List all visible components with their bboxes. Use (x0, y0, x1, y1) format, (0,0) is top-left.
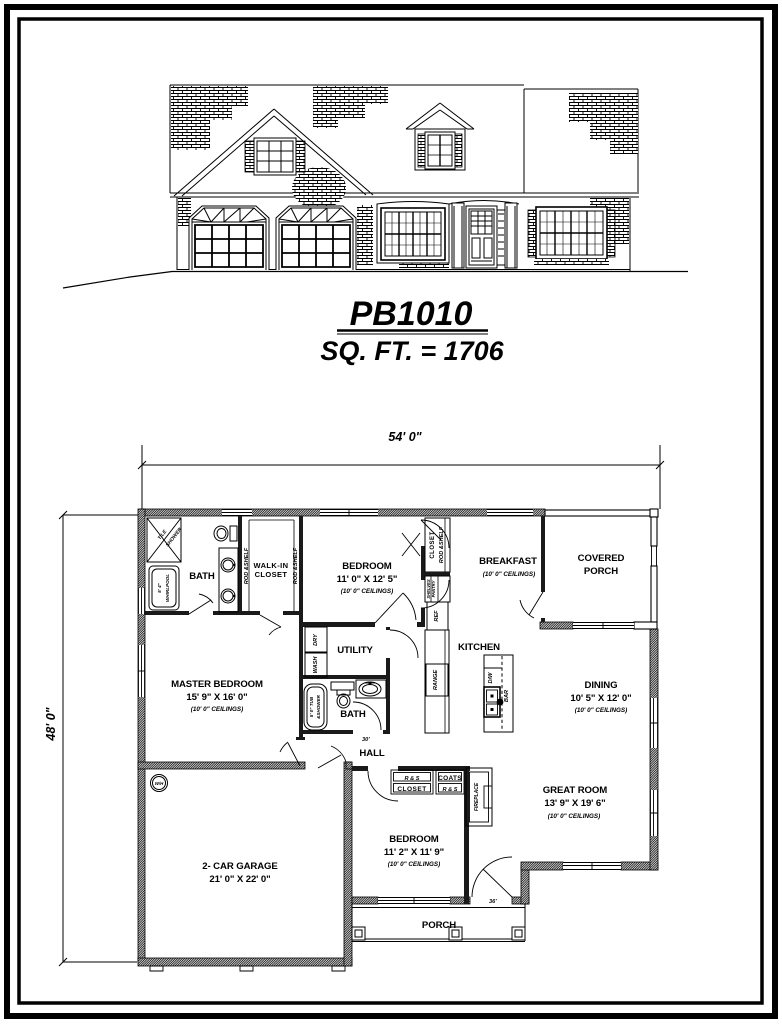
svg-text:FIREPLACE: FIREPLACE (474, 782, 480, 811)
svg-text:10' 5" X 12' 0": 10' 5" X 12' 0" (570, 693, 631, 704)
svg-text:D/W: D/W (488, 672, 494, 684)
svg-text:DRY: DRY (313, 633, 319, 646)
svg-text:PORCH: PORCH (422, 920, 456, 931)
svg-text:11' 0" X 12' 5": 11' 0" X 12' 5" (337, 574, 398, 585)
svg-text:BREAKFAST: BREAKFAST (479, 556, 537, 567)
svg-text:R & S: R & S (443, 787, 458, 793)
svg-text:36': 36' (489, 899, 497, 905)
svg-text:ROD &SHELF: ROD &SHELF (244, 547, 250, 584)
svg-text:WASH: WASH (313, 656, 319, 674)
svg-text:15' 9" X 16' 0": 15' 9" X 16' 0" (186, 692, 247, 703)
svg-text:HALL: HALL (359, 748, 384, 759)
svg-text:BATH: BATH (340, 709, 366, 720)
svg-text:CLOSET: CLOSET (397, 786, 426, 793)
svg-text:(10' 0" CEILINGS): (10' 0" CEILINGS) (388, 861, 440, 868)
svg-text:SQ. FT. = 1706: SQ. FT. = 1706 (320, 336, 504, 366)
svg-text:2- CAR GARAGE: 2- CAR GARAGE (202, 861, 278, 872)
svg-text:PANTRY: PANTRY (431, 579, 436, 597)
svg-text:BEDROOM: BEDROOM (389, 834, 439, 845)
svg-text:BAR: BAR (504, 690, 510, 702)
svg-text:W/H: W/H (155, 781, 164, 786)
svg-text:UTILITY: UTILITY (337, 645, 373, 656)
svg-text:WALK-IN: WALK-IN (254, 561, 289, 570)
svg-text:5' 0" TUB: 5' 0" TUB (309, 696, 314, 717)
svg-text:48' 0": 48' 0" (44, 706, 58, 741)
svg-text:PB1010: PB1010 (350, 295, 473, 333)
svg-text:54' 0": 54' 0" (388, 430, 422, 444)
svg-text:PORCH: PORCH (584, 566, 618, 577)
svg-text:RANGE: RANGE (433, 670, 439, 690)
svg-text:R & S: R & S (405, 776, 420, 782)
svg-text:CLOSET: CLOSET (430, 531, 436, 558)
svg-text:COATS: COATS (438, 775, 462, 782)
svg-text:BEDROOM: BEDROOM (342, 561, 392, 572)
svg-text:(10' 0" CEILINGS): (10' 0" CEILINGS) (341, 588, 393, 595)
svg-text:5' 4": 5' 4" (157, 582, 162, 592)
svg-text:WHIRLPOOL: WHIRLPOOL (165, 574, 170, 602)
svg-text:CLOSET: CLOSET (255, 570, 288, 579)
svg-text:30': 30' (362, 737, 370, 743)
svg-text:(10' 0" CEILINGS): (10' 0" CEILINGS) (548, 813, 600, 820)
svg-text:REF: REF (434, 610, 440, 622)
svg-text:BATH: BATH (189, 571, 215, 582)
svg-text:MASTER BEDROOM: MASTER BEDROOM (171, 679, 263, 690)
svg-text:GREAT ROOM: GREAT ROOM (543, 785, 607, 796)
svg-text:DINING: DINING (585, 680, 618, 691)
svg-text:(10' 0" CEILINGS): (10' 0" CEILINGS) (191, 706, 243, 713)
svg-text:13' 9" X 19' 6": 13' 9" X 19' 6" (544, 798, 605, 809)
svg-text:11' 2" X 11' 9": 11' 2" X 11' 9" (384, 847, 444, 858)
svg-text:COVERED: COVERED (578, 553, 625, 564)
svg-text:&SHOWER: &SHOWER (316, 694, 321, 719)
svg-text:KITCHEN: KITCHEN (458, 642, 500, 653)
svg-text:21' 0" X 22' 0": 21' 0" X 22' 0" (209, 874, 270, 885)
svg-text:(10' 0" CEILINGS): (10' 0" CEILINGS) (483, 571, 535, 578)
svg-text:(10' 0" CEILINGS): (10' 0" CEILINGS) (575, 707, 627, 714)
svg-text:ROD &SHELF: ROD &SHELF (293, 547, 299, 584)
